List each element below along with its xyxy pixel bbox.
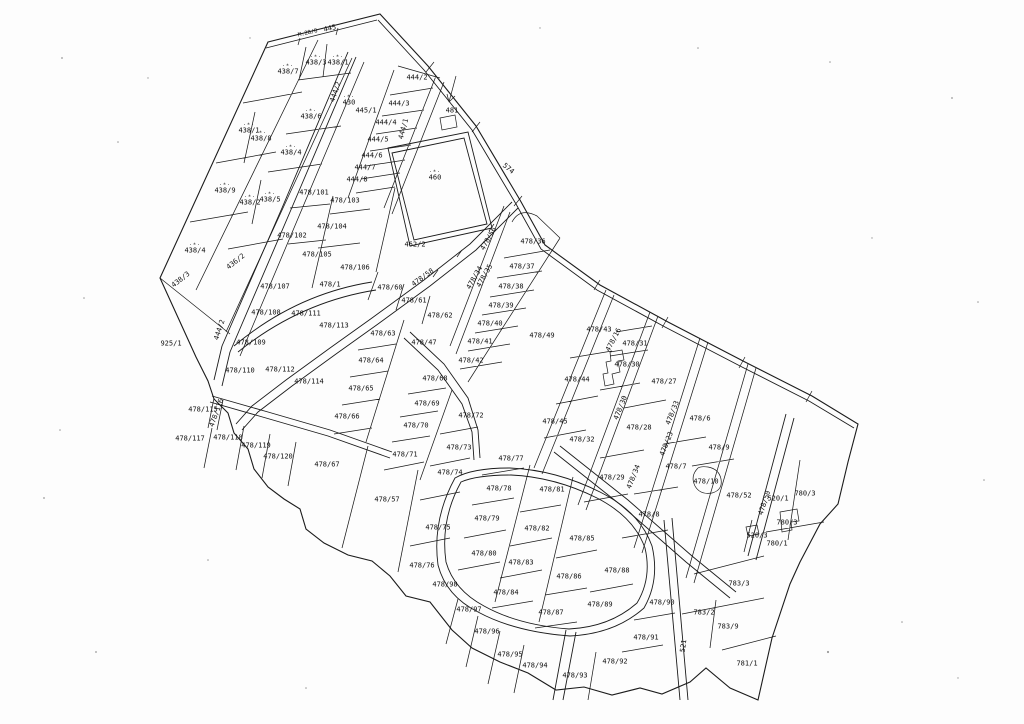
parcel-number: 478/70: [403, 423, 428, 430]
parcel-label: ·*·438/4: [280, 146, 301, 157]
parcel-label: 478/116: [209, 398, 226, 428]
parcel-number: 478/78: [486, 486, 511, 493]
parcel-label: 444/2: [406, 75, 427, 82]
parcel-number: 438/8: [250, 136, 271, 143]
parcel-number: 445/1: [355, 108, 376, 115]
parcel-number: 438/9: [214, 188, 235, 195]
parcel-label: ·*·430: [343, 96, 356, 107]
parcel-label: 478/29: [599, 475, 624, 482]
parcel-number: 478/104: [317, 224, 347, 231]
parcel-label: 444/2: [213, 319, 226, 341]
parcel-label: 478/96: [474, 629, 499, 636]
parcel-number: 478/7: [665, 464, 686, 471]
parcel-label: 783/3: [728, 581, 749, 588]
parcel-number: 478/64: [358, 358, 383, 365]
parcel-number: 478/82: [524, 526, 549, 533]
parcel-number: 478/116: [209, 398, 226, 428]
parcel-number: 444/3: [388, 101, 409, 108]
parcel-label: 925/1: [160, 341, 181, 348]
parcel-label: 444/5: [367, 137, 388, 144]
parcel-label: 780/3: [776, 520, 797, 527]
parcel-number: 462/2: [404, 242, 425, 249]
parcel-label: ·*·438/7: [277, 65, 298, 76]
parcel-label: 478/76: [409, 563, 434, 570]
parcel-number: 478/108: [251, 310, 281, 317]
parcel-label: 478/36: [520, 239, 545, 246]
parcel-label: ·*·460: [429, 171, 442, 182]
parcel-number: 478/97: [456, 607, 481, 614]
parcel-label: 478/61: [401, 298, 426, 305]
parcel-label: 478/64: [358, 358, 383, 365]
parcel-label: 478/110: [225, 368, 255, 375]
parcel-number: 436/2: [226, 253, 247, 271]
parcel-number: 478/113: [319, 323, 349, 330]
parcel-label: 478/27: [651, 379, 676, 386]
parcel-label: 478/44: [564, 377, 589, 384]
parcel-label: 478/60: [377, 285, 402, 292]
parcel-label: 478/75: [425, 525, 450, 532]
parcel-label: 478/92: [602, 659, 627, 666]
parcel-number: 478/112: [265, 367, 295, 374]
parcel-label: 478/98: [432, 582, 457, 589]
parcel-number: 478/101: [299, 190, 329, 197]
parcel-number: 478/105: [302, 252, 332, 259]
parcel-number: 478/72: [458, 413, 483, 420]
parcel-label: 521: [680, 639, 689, 653]
parcel-number: 444/2: [406, 75, 427, 82]
parcel-number: 783/9: [717, 624, 738, 631]
parcel-label: ·*·438/9: [214, 184, 235, 195]
parcel-number: 478/90: [649, 600, 674, 607]
parcel-number: 520/3: [746, 533, 767, 540]
parcel-number: 478/40: [477, 321, 502, 328]
parcel-number: 478/69: [414, 401, 439, 408]
parcel-number: 478/44: [564, 377, 589, 384]
parcel-number: 478/37: [509, 264, 534, 271]
parcel-label: 478/56: [480, 226, 499, 251]
parcel-label: 478/90: [649, 600, 674, 607]
parcel-label: 783/2: [693, 610, 714, 617]
parcel-label: 478/30: [614, 362, 639, 369]
parcel-label: 478/30: [613, 395, 629, 421]
parcel-number: 478/60: [377, 285, 402, 292]
parcel-label: 478/86: [556, 574, 581, 581]
parcel-label: 478/39: [488, 303, 513, 310]
parcel-label: 478/40: [477, 321, 502, 328]
parcel-label: 478/89: [587, 602, 612, 609]
parcel-number: 478/30: [613, 395, 629, 421]
parcel-label: 478/62: [427, 313, 452, 320]
parcel-number: 478/28: [626, 425, 651, 432]
parcel-number: 478/62: [427, 313, 452, 320]
parcel-number: 478/88: [604, 568, 629, 575]
parcel-number: 781/1: [736, 661, 757, 668]
parcel-label: 478/80: [471, 551, 496, 558]
parcel-number: 444/7: [354, 165, 375, 172]
parcel-label: 478/41: [467, 339, 492, 346]
parcel-number: 478/63: [370, 331, 395, 338]
parcel-number: M.28/8: [298, 29, 319, 39]
parcel-label: M.28/8: [298, 29, 319, 39]
parcel-label: 478/101: [299, 190, 329, 197]
parcel-number: 478/106: [340, 265, 370, 272]
parcel-label: 478/95: [497, 652, 522, 659]
parcel-number: 438/3: [305, 60, 326, 67]
parcel-label: 478/91: [633, 635, 658, 642]
parcel-number: 478/10: [693, 479, 718, 486]
parcel-number: 478/110: [225, 368, 255, 375]
parcel-number: 460: [429, 175, 442, 182]
parcel-label: 462/2: [404, 242, 425, 249]
parcel-label: 478/112: [265, 367, 295, 374]
parcel-number: 521: [680, 639, 689, 653]
parcel-label: 478/71: [392, 452, 417, 459]
parcel-label: 478/78: [486, 486, 511, 493]
parcel-number: 478/36: [520, 239, 545, 246]
parcel-number: 444/5: [367, 137, 388, 144]
parcel-label: ·*·438/2: [239, 196, 260, 207]
parcel-number: 478/73: [446, 445, 471, 452]
parcel-number: 438/3: [171, 271, 192, 289]
parcel-number: 478/86: [556, 574, 581, 581]
parcel-label: 478/7: [665, 464, 686, 471]
parcel-number: 478/56: [480, 226, 499, 251]
parcel-label: 478/79: [474, 516, 499, 523]
parcel-number: 478/61: [401, 298, 426, 305]
parcel-number: 478/107: [260, 284, 290, 291]
parcel-label: 478/74: [437, 470, 462, 477]
parcel-number: 478/66: [334, 414, 359, 421]
parcel-number: 520/1: [767, 496, 788, 503]
parcel-number: 478/89: [587, 602, 612, 609]
parcel-number: 478/77: [498, 456, 523, 463]
parcel-number: 478/83: [508, 560, 533, 567]
parcel-label: 478/73: [446, 445, 471, 452]
parcel-label: 478/77: [498, 456, 523, 463]
parcel-label: 478/38: [498, 284, 523, 291]
parcel-label: 478/114: [294, 379, 324, 386]
parcel-number: 438/2: [239, 200, 260, 207]
parcel-number: 444/2: [329, 81, 342, 103]
parcel-label: 780/3: [794, 491, 815, 498]
parcel-number: 478/111: [291, 311, 321, 318]
parcel-label: 478/67: [314, 462, 339, 469]
parcel-number: 478/118: [213, 435, 243, 442]
parcel-label: 520/1: [767, 496, 788, 503]
parcel-label: 481: [446, 108, 459, 115]
parcel-number: 444/1: [398, 118, 410, 140]
parcel-number: 478/120: [263, 454, 293, 461]
parcel-label: 445: [323, 24, 337, 34]
parcel-number: 478/80: [471, 551, 496, 558]
parcel-number: 478/75: [425, 525, 450, 532]
parcel-number: 478/68: [422, 376, 447, 383]
parcel-label: 478/103: [330, 198, 360, 205]
parcel-number: 478/79: [474, 516, 499, 523]
parcel-number: 478/8: [638, 512, 659, 519]
parcel-label: 478/9: [708, 445, 729, 452]
parcel-label: 478/32: [569, 437, 594, 444]
parcel-number: 478/32: [569, 437, 594, 444]
parcel-label: 478/105: [302, 252, 332, 259]
parcel-label: 478/118: [213, 435, 243, 442]
parcel-number: 438/6: [300, 114, 321, 121]
parcel-number: 780/1: [766, 541, 787, 548]
parcel-label: 478/70: [403, 423, 428, 430]
parcel-label: 478/82: [524, 526, 549, 533]
parcel-number: 478/67: [314, 462, 339, 469]
parcel-label: 478/117: [175, 436, 205, 443]
parcel-label: 478/83: [508, 560, 533, 567]
parcel-label: 478/37: [509, 264, 534, 271]
parcel-label: 478/65: [348, 386, 373, 393]
parcel-number: 478/39: [488, 303, 513, 310]
parcel-number: 574: [501, 162, 515, 175]
parcel-label: 478/69: [414, 401, 439, 408]
parcel-label: ·*·438/1: [327, 56, 348, 67]
parcel-number: 478/6: [689, 416, 710, 423]
parcel-label: 478/6: [689, 416, 710, 423]
parcel-label: 444/3: [388, 101, 409, 108]
parcel-label: 444/4: [375, 120, 396, 127]
parcel-number: 438/4: [280, 150, 301, 157]
parcel-number: 780/3: [776, 520, 797, 527]
parcel-label: 478/113: [319, 323, 349, 330]
parcel-label: 478/120: [263, 454, 293, 461]
parcel-number: 478/57: [374, 497, 399, 504]
parcel-label: ·*·438/5: [259, 193, 280, 204]
parcel-number: 438/5: [259, 197, 280, 204]
parcel-number: 444/2: [213, 319, 226, 341]
parcel-number: 478/117: [175, 436, 205, 443]
parcel-label: 478/43: [586, 327, 611, 334]
parcel-number: 783/3: [728, 581, 749, 588]
parcel-label: ·*·438/4: [184, 244, 205, 255]
parcel-label: 478/47: [411, 340, 436, 347]
parcel-number: 481: [446, 108, 459, 115]
cadastral-map: 445M.28/8·*·438/3·*·438/1·*·438/7444/2·*…: [0, 0, 1024, 724]
parcel-label: ·*·438/6: [300, 110, 321, 121]
parcel-label: ·*·438/3: [305, 56, 326, 67]
parcel-label: 478/108: [251, 310, 281, 317]
parcel-number: 478/81: [539, 487, 564, 494]
parcel-label: 478/88: [604, 568, 629, 575]
parcel-number: 478/29: [599, 475, 624, 482]
parcel-label: 478/66: [334, 414, 359, 421]
parcel-number: 438/4: [184, 248, 205, 255]
parcel-label: 478/68: [422, 376, 447, 383]
parcel-number: 445: [323, 24, 337, 34]
parcel-number: 478/91: [633, 635, 658, 642]
parcel-number: 780/3: [794, 491, 815, 498]
parcel-number: 478/103: [330, 198, 360, 205]
parcel-label: 436/2: [226, 253, 247, 271]
parcel-number: 478/27: [651, 379, 676, 386]
parcel-label: 478/34: [626, 464, 642, 490]
parcel-label: 478/94: [522, 663, 547, 670]
parcel-number: 478/76: [409, 563, 434, 570]
parcel-number: 444/8: [346, 177, 367, 184]
parcel-number: 478/65: [348, 386, 373, 393]
parcel-number: 478/84: [493, 590, 518, 597]
parcel-label: 438/3: [171, 271, 192, 289]
parcel-number: 478/52: [726, 493, 751, 500]
parcel-number: 478/42: [458, 358, 483, 365]
parcel-number: 478/93: [562, 673, 587, 680]
parcel-number: 438/7: [277, 69, 298, 76]
parcel-label: ·*·438/8: [250, 132, 271, 143]
parcel-label: 478/28: [626, 425, 651, 432]
parcel-label: 781/1: [736, 661, 757, 668]
parcel-labels-layer: 445M.28/8·*·438/3·*·438/1·*·438/7444/2·*…: [0, 0, 1024, 724]
parcel-number: 478/33: [665, 400, 681, 426]
parcel-label: 444/2: [329, 81, 342, 103]
parcel-label: 478/104: [317, 224, 347, 231]
parcel-label: 780/1: [766, 541, 787, 548]
parcel-label: 478/45: [542, 419, 567, 426]
parcel-number: 438/1: [327, 60, 348, 67]
parcel-label: 478/58: [411, 268, 436, 289]
parcel-number: 478/41: [467, 339, 492, 346]
parcel-number: 478/43: [586, 327, 611, 334]
parcel-number: 925/1: [160, 341, 181, 348]
parcel-label: 478/31: [622, 341, 647, 348]
parcel-number: 444/6: [361, 153, 382, 160]
parcel-number: 478/87: [538, 610, 563, 617]
parcel-number: 478/98: [432, 582, 457, 589]
parcel-number: 430: [343, 100, 356, 107]
parcel-number: 478/74: [437, 470, 462, 477]
parcel-label: 445/1: [355, 108, 376, 115]
parcel-label: 478/81: [539, 487, 564, 494]
parcel-label: 478/52: [726, 493, 751, 500]
parcel-number: 478/109: [236, 340, 266, 347]
parcel-number: 444/4: [375, 120, 396, 127]
parcel-number: 478/85: [569, 536, 594, 543]
parcel-label: 478/42: [458, 358, 483, 365]
parcel-number: 478/34: [626, 464, 642, 490]
parcel-number: 478/102: [277, 233, 307, 240]
parcel-number: 478/47: [411, 340, 436, 347]
parcel-number: 478/1: [319, 282, 340, 289]
parcel-label: 478/102: [277, 233, 307, 240]
parcel-number: 478/92: [602, 659, 627, 666]
parcel-label: 478/93: [562, 673, 587, 680]
parcel-number: 478/9: [708, 445, 729, 452]
parcel-label: 478/8: [638, 512, 659, 519]
parcel-number: 478/96: [474, 629, 499, 636]
parcel-label: 478/10: [693, 479, 718, 486]
parcel-label: 444/7: [354, 165, 375, 172]
parcel-label: 444/8: [346, 177, 367, 184]
parcel-label: 478/119: [241, 443, 271, 450]
parcel-label: 478/49: [529, 333, 554, 340]
parcel-label: 478/109: [236, 340, 266, 347]
parcel-label: 478/87: [538, 610, 563, 617]
parcel-number: 478/45: [542, 419, 567, 426]
parcel-number: 478/95: [497, 652, 522, 659]
parcel-number: 478/23: [659, 431, 675, 457]
parcel-label: 478/57: [374, 497, 399, 504]
parcel-number: 478/119: [241, 443, 271, 450]
parcel-number: 478/38: [498, 284, 523, 291]
parcel-number: 478/58: [411, 268, 436, 289]
parcel-number: 478/71: [392, 452, 417, 459]
parcel-label: 478/1: [319, 282, 340, 289]
parcel-label: 478/72: [458, 413, 483, 420]
parcel-label: 478/33: [665, 400, 681, 426]
parcel-label: 478/23: [659, 431, 675, 457]
parcel-label: 478/107: [260, 284, 290, 291]
parcel-label: 444/6: [361, 153, 382, 160]
parcel-label: 574: [501, 162, 515, 175]
parcel-label: 478/111: [291, 311, 321, 318]
parcel-label: 478/84: [493, 590, 518, 597]
parcel-number: 478/31: [622, 341, 647, 348]
parcel-label: 783/9: [717, 624, 738, 631]
parcel-label: 478/63: [370, 331, 395, 338]
parcel-label: 444/1: [398, 118, 410, 140]
parcel-label: 478/85: [569, 536, 594, 543]
parcel-label: 478/106: [340, 265, 370, 272]
parcel-number: 478/94: [522, 663, 547, 670]
parcel-label: 478/97: [456, 607, 481, 614]
parcel-number: 783/2: [693, 610, 714, 617]
parcel-number: 478/30: [614, 362, 639, 369]
parcel-label: 520/3: [746, 533, 767, 540]
parcel-number: 478/114: [294, 379, 324, 386]
parcel-number: 478/49: [529, 333, 554, 340]
